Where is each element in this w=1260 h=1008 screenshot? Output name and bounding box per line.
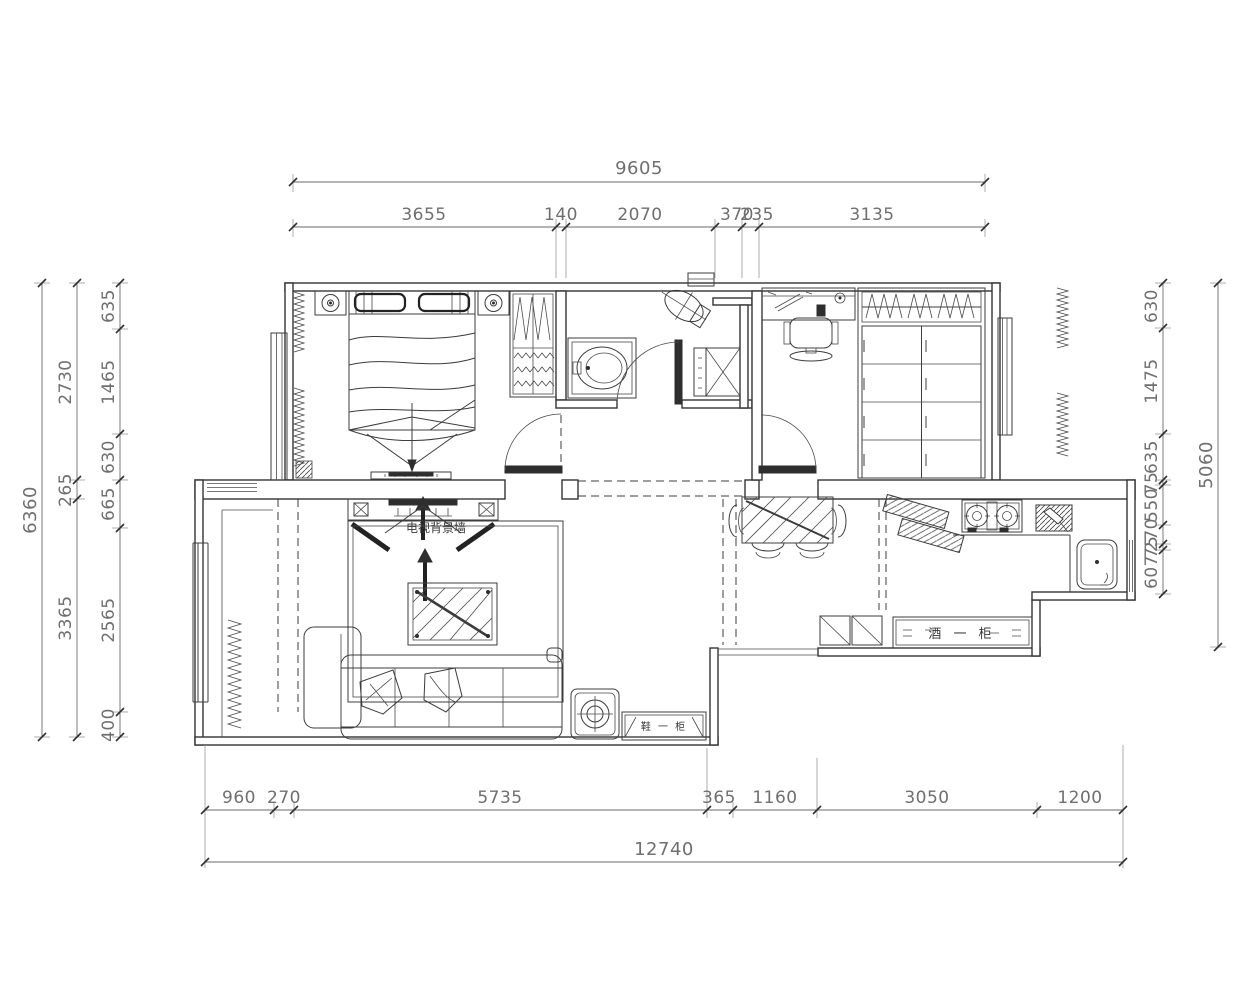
dim-top-5: 3135: [849, 205, 894, 225]
shoe-cabinet-label: 鞋 一 柜: [641, 720, 687, 733]
dim-top-total: 9605: [615, 158, 663, 179]
dim-bot-1: 270: [267, 788, 301, 808]
dim-leftin-1: 1465: [99, 359, 119, 404]
dim-leftin-2: 630: [99, 440, 119, 474]
kitchen-sink: [1077, 540, 1117, 589]
bathroom: [568, 273, 740, 404]
dim-rightin-7: 607: [1142, 555, 1162, 589]
dim-bot-5: 3050: [904, 788, 949, 808]
bedroom-door: [505, 414, 562, 473]
dim-top-1: 140: [544, 205, 578, 225]
dim-top-2: 2070: [617, 205, 662, 225]
bedroom-view-arrow: [367, 403, 457, 471]
dim-leftmid-2: 3365: [56, 595, 76, 640]
dim-bot-4: 1160: [752, 788, 797, 808]
sofa: [304, 627, 562, 739]
coffee-table: [408, 583, 497, 645]
sliding-door: [883, 494, 964, 552]
dim-leftin-3: 665: [99, 487, 119, 521]
shoe-cabinet: 鞋 一 柜: [622, 712, 706, 740]
dim-rightin-6: 75: [1142, 536, 1162, 559]
viewing-arrows: [352, 497, 494, 601]
dining-table: [742, 497, 833, 543]
bedroom: [315, 291, 562, 479]
wine-cabinet-label: 酒 一 柜: [928, 627, 995, 642]
dim-rightin-4: 550: [1142, 488, 1162, 522]
dim-leftin-0: 635: [99, 289, 119, 323]
dim-leftmid-1: 265: [56, 473, 76, 507]
washing-machine: [694, 348, 740, 396]
dim-leftin-5: 400: [99, 708, 119, 742]
wine-cabinet: 酒 一 柜: [893, 617, 1032, 648]
dim-top-4: 235: [740, 205, 774, 225]
study-door: [759, 415, 816, 473]
low-cabinets: [820, 616, 882, 645]
study-wardrobe: [858, 288, 985, 478]
dim-bot-2: 5735: [477, 788, 522, 808]
cutting-board: [1036, 505, 1072, 532]
dim-left-total: 6360: [20, 486, 41, 534]
side-table: [571, 689, 619, 739]
dim-rightin-1: 1475: [1142, 358, 1162, 403]
dim-bot-6: 1200: [1057, 788, 1102, 808]
vanity-sink: [568, 338, 636, 398]
dining-area: [729, 497, 846, 558]
dim-leftin-4: 2565: [99, 597, 119, 642]
dim-leftmid-0: 2730: [56, 359, 76, 404]
bedroom-tv-board: [371, 472, 451, 479]
living-room: 电视背景墙: [304, 497, 706, 740]
dim-rightin-0: 630: [1142, 289, 1162, 323]
toilet: [653, 273, 714, 333]
walls: [195, 283, 1135, 745]
floor-plan-page: 电视背景墙: [0, 0, 1260, 1008]
desk: [762, 288, 855, 320]
floor-plan-canvas: 电视背景墙: [0, 0, 1260, 1008]
dim-rightin-2: 635: [1142, 440, 1162, 474]
dim-bot-3: 365: [702, 788, 736, 808]
dim-right-total: 5060: [1196, 441, 1217, 489]
kitchen: 酒 一 柜: [820, 494, 1117, 648]
desk-chair: [784, 318, 838, 361]
bedroom-wardrobe: [510, 291, 556, 397]
dim-bottom-total: 12740: [634, 839, 694, 860]
study: [759, 288, 985, 478]
stove: [962, 500, 1022, 532]
tv-wall-label: 电视背景墙: [406, 520, 466, 535]
dim-top-0: 3655: [401, 205, 446, 225]
dim-bot-0: 960: [222, 788, 256, 808]
